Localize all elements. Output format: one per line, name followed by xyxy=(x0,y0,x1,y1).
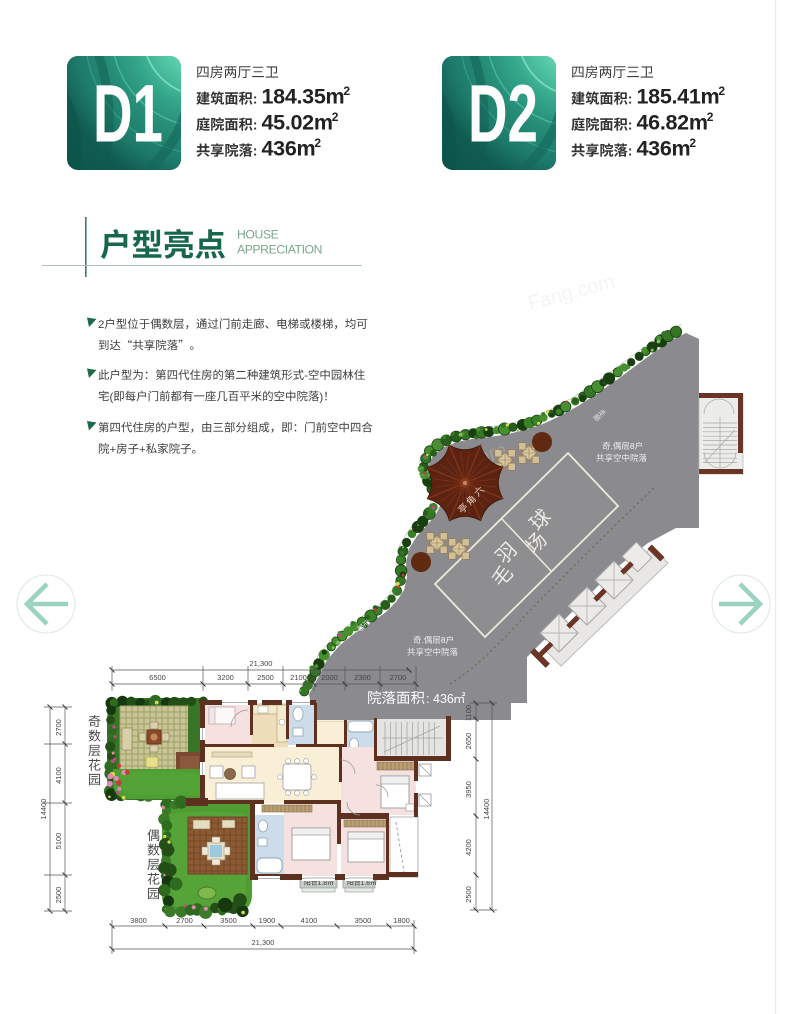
svg-text:2700: 2700 xyxy=(390,673,407,682)
svg-text:2: 2 xyxy=(343,84,350,98)
svg-text::: : xyxy=(628,92,633,108)
svg-text:2500: 2500 xyxy=(54,887,63,904)
svg-text:-: - xyxy=(304,370,308,382)
svg-text:1800: 1800 xyxy=(393,916,410,925)
svg-text::: : xyxy=(628,144,633,160)
svg-text:D2: D2 xyxy=(468,69,538,160)
svg-text:21,300: 21,300 xyxy=(250,659,273,668)
svg-text:): ) xyxy=(319,391,323,403)
svg-text:2700: 2700 xyxy=(54,719,63,736)
svg-text:2300: 2300 xyxy=(354,673,371,682)
svg-text:2100: 2100 xyxy=(290,673,307,682)
svg-text:21,300: 21,300 xyxy=(252,938,275,947)
svg-text:14400: 14400 xyxy=(482,799,491,820)
svg-text:4100: 4100 xyxy=(54,767,63,784)
svg-text:2700: 2700 xyxy=(176,916,193,925)
svg-text:2000: 2000 xyxy=(321,673,338,682)
svg-text:3200: 3200 xyxy=(217,673,234,682)
svg-text:2500: 2500 xyxy=(464,886,473,903)
svg-text:2: 2 xyxy=(707,110,714,124)
svg-text:8: 8 xyxy=(441,635,446,645)
svg-text:.: . xyxy=(364,880,366,887)
svg-text:3800: 3800 xyxy=(130,916,147,925)
svg-text:2: 2 xyxy=(98,319,104,331)
svg-text:8: 8 xyxy=(323,880,327,887)
svg-text:45.02m: 45.02m xyxy=(262,111,333,135)
svg-text::: : xyxy=(253,92,258,108)
svg-text:2: 2 xyxy=(314,136,321,150)
svg-text:3500: 3500 xyxy=(220,916,237,925)
svg-text:4200: 4200 xyxy=(464,839,473,856)
svg-text:.: . xyxy=(422,635,424,645)
svg-text:+: + xyxy=(109,444,116,456)
svg-text:3500: 3500 xyxy=(355,916,372,925)
svg-text:APPRECIATION: APPRECIATION xyxy=(237,243,322,257)
svg-text::: : xyxy=(426,691,430,706)
svg-text:D1: D1 xyxy=(93,69,163,160)
svg-text:1100: 1100 xyxy=(464,705,473,721)
svg-text:6500: 6500 xyxy=(149,673,166,682)
svg-text::: : xyxy=(253,118,258,134)
svg-text:2: 2 xyxy=(332,110,339,124)
svg-text:.: . xyxy=(321,880,323,887)
svg-text:5100: 5100 xyxy=(54,833,63,850)
svg-text:436m: 436m xyxy=(637,137,691,161)
svg-text:46.82m: 46.82m xyxy=(637,111,708,135)
svg-text:436: 436 xyxy=(433,692,454,706)
svg-text:14400: 14400 xyxy=(39,799,48,820)
svg-text:3950: 3950 xyxy=(464,781,473,798)
svg-text::: : xyxy=(253,144,258,160)
svg-text:2: 2 xyxy=(689,136,696,150)
svg-text:.: . xyxy=(611,441,613,451)
svg-text::: : xyxy=(628,118,633,134)
svg-text:+: + xyxy=(139,444,146,456)
svg-text:2650: 2650 xyxy=(464,733,473,750)
svg-text:1900: 1900 xyxy=(259,916,276,925)
svg-text:1: 1 xyxy=(318,880,322,887)
svg-text:HOUSE: HOUSE xyxy=(237,228,279,242)
svg-text:1: 1 xyxy=(361,880,365,887)
svg-text:8: 8 xyxy=(630,441,635,451)
svg-text:184.35m: 184.35m xyxy=(262,85,345,109)
svg-text:185.41m: 185.41m xyxy=(637,85,720,109)
svg-text:2: 2 xyxy=(718,84,725,98)
svg-text:6: 6 xyxy=(366,880,370,887)
svg-text:4100: 4100 xyxy=(301,916,318,925)
svg-text:(: ( xyxy=(109,391,113,403)
svg-text:2500: 2500 xyxy=(257,673,274,682)
svg-text:436m: 436m xyxy=(262,137,316,161)
